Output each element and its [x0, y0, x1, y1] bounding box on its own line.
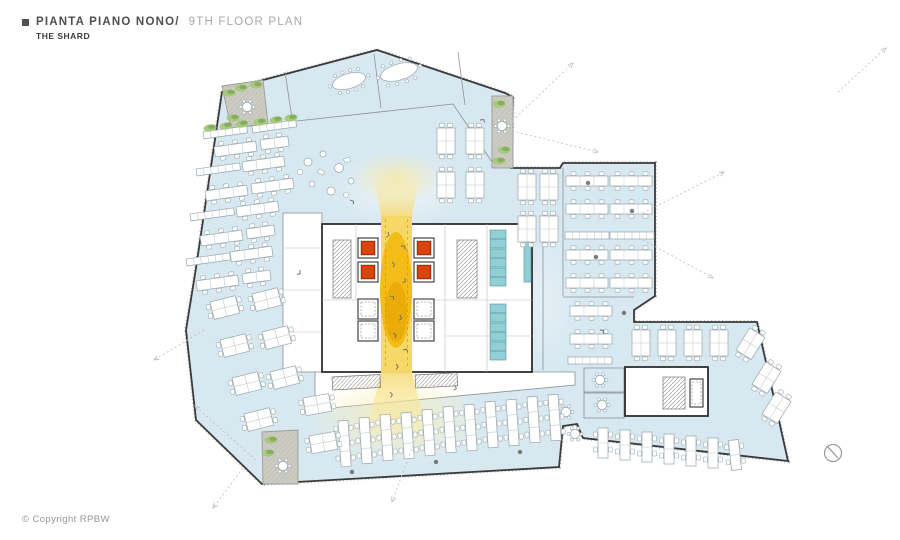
title-secondary: 9TH FLOOR PLAN — [189, 16, 304, 28]
floor-plan-drawing — [0, 0, 900, 540]
terrace-bottom-left — [262, 430, 299, 484]
drawing-title-block: ■ PIANTA PIANO NONO/ 9TH FLOOR PLAN THE … — [22, 16, 303, 41]
copyright-note: © Copyright RPBW — [22, 514, 110, 525]
terrace-top-right — [492, 96, 513, 168]
secondary-core — [625, 367, 708, 416]
title-subtitle: THE SHARD — [36, 31, 303, 41]
title-bullet-icon: ■ — [22, 19, 29, 26]
title-primary: PIANTA PIANO NONO/ — [36, 16, 180, 28]
compass-icon — [825, 445, 842, 462]
lift-car-red — [358, 238, 378, 258]
